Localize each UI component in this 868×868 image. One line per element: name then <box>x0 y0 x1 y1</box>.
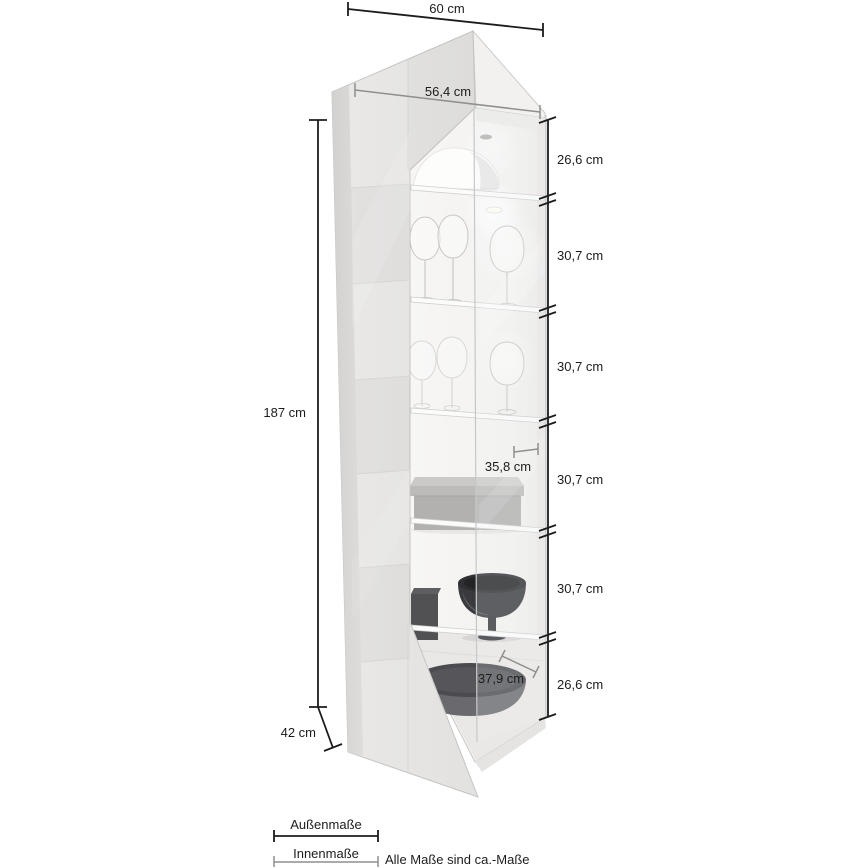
dimension-right-segments: 26,6 cm 30,7 cm 30,7 cm 30,7 cm 30,7 cm … <box>539 117 603 720</box>
glass-door <box>474 108 545 742</box>
diagram-canvas: 60 cm 56,4 cm 187 cm 42 cm <box>0 0 868 868</box>
cabinet-interior <box>408 108 545 762</box>
legend-outer-dimensions: Außenmaße <box>274 817 378 842</box>
segment-label-3: 30,7 cm <box>557 359 603 374</box>
dimension-outer-height: 187 cm <box>263 120 327 707</box>
segment-label-4: 30,7 cm <box>557 472 603 487</box>
legend-outer-label: Außenmaße <box>290 817 362 832</box>
dimension-label-60cm: 60 cm <box>429 1 464 16</box>
dimension-label-37-9cm: 37,9 cm <box>478 671 524 686</box>
dimension-label-187cm: 187 cm <box>263 405 306 420</box>
product-dimension-diagram: 60 cm 56,4 cm 187 cm 42 cm <box>0 0 868 868</box>
segment-label-1: 26,6 cm <box>557 152 603 167</box>
dimension-label-42cm: 42 cm <box>281 725 316 740</box>
legend-inner-dimensions: Innenmaße <box>274 846 378 867</box>
segment-label-6: 26,6 cm <box>557 677 603 692</box>
legend: Außenmaße Innenmaße Alle Maße sind ca.-M… <box>274 817 530 867</box>
cabinet-top-face <box>473 31 545 120</box>
segment-label-2: 30,7 cm <box>557 248 603 263</box>
dimension-outer-depth: 42 cm <box>281 707 342 751</box>
dimension-label-56-4cm: 56,4 cm <box>425 84 471 99</box>
dimension-outer-width: 60 cm <box>348 1 543 37</box>
legend-note: Alle Maße sind ca.-Maße <box>385 852 530 867</box>
segment-label-5: 30,7 cm <box>557 581 603 596</box>
door-tile <box>355 376 410 474</box>
dimension-label-35-8cm: 35,8 cm <box>485 459 531 474</box>
legend-inner-label: Innenmaße <box>293 846 359 861</box>
